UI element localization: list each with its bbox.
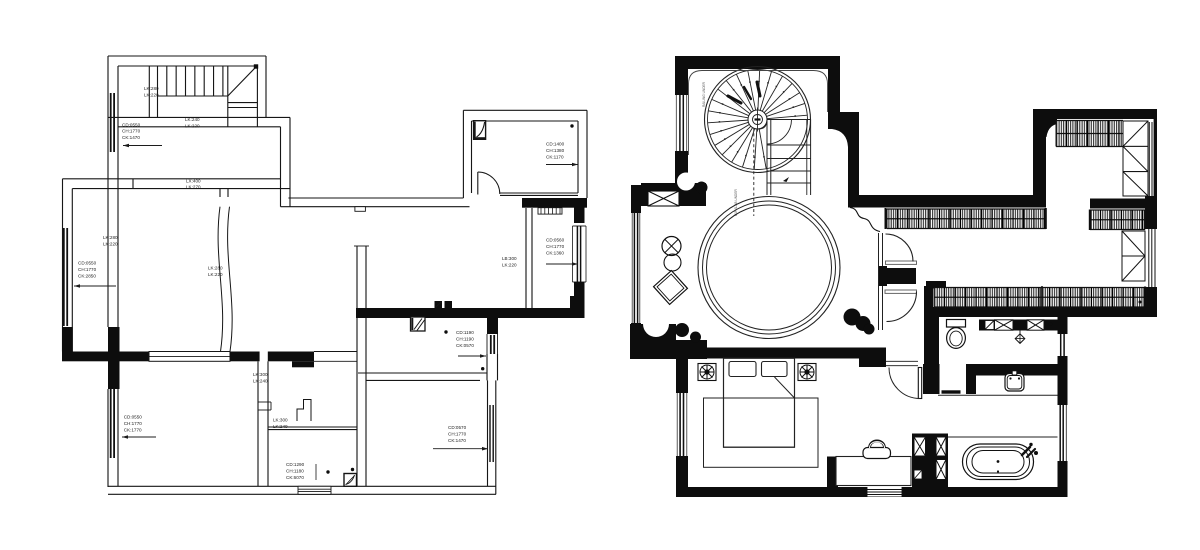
svg-text:LK:220: LK:220 [103, 241, 118, 246]
svg-text:CH:1180: CH:1180 [286, 468, 304, 473]
svg-text:LK:280: LK:280 [103, 235, 118, 240]
svg-text:CK:1170: CK:1170 [546, 154, 564, 159]
svg-text:LK:220: LK:220 [502, 262, 517, 267]
svg-text:LB:300: LB:300 [502, 256, 517, 261]
svg-text:LK:220: LK:220 [144, 92, 159, 97]
svg-text:LK:300: LK:300 [253, 372, 268, 377]
svg-text:CK:6070: CK:6070 [286, 475, 304, 480]
svg-text:LK:220: LK:220 [208, 272, 223, 277]
svg-text:LK:270: LK:270 [186, 185, 201, 190]
svg-text:LK:240: LK:240 [273, 424, 288, 429]
svg-text:LK:280: LK:280 [144, 86, 159, 91]
svg-text:CH:1770: CH:1770 [122, 129, 141, 134]
svg-text:LK:300: LK:300 [273, 418, 288, 423]
svg-text:CK:1360: CK:1360 [546, 250, 564, 255]
svg-text:RAILING UNDER: RAILING UNDER [702, 81, 706, 107]
svg-text:CD:1290: CD:1290 [286, 462, 305, 467]
svg-text:CD:1190: CD:1190 [456, 330, 474, 335]
svg-text:LK:220: LK:220 [185, 123, 200, 128]
svg-text:CH:1770: CH:1770 [546, 244, 565, 249]
svg-text:CD:0550: CD:0550 [124, 415, 143, 420]
svg-text:CK:0570: CK:0570 [456, 343, 474, 348]
svg-text:B1F.SLAB UNDER: B1F.SLAB UNDER [734, 189, 738, 216]
svg-text:CH:1770: CH:1770 [124, 421, 143, 426]
svg-text:CH:1770: CH:1770 [448, 431, 467, 436]
svg-text:CK:1470: CK:1470 [122, 135, 140, 140]
svg-text:CD:0550: CD:0550 [78, 261, 97, 266]
svg-text:LX:400: LX:400 [186, 178, 201, 183]
svg-text:CD:0570: CD:0570 [448, 425, 467, 430]
svg-text:CD:0550: CD:0550 [122, 122, 141, 127]
svg-text:CK:1770: CK:1770 [124, 427, 142, 432]
svg-text:LK:240: LK:240 [185, 117, 200, 122]
svg-text:LK:280: LK:280 [208, 266, 223, 271]
svg-text:CD:1400: CD:1400 [546, 142, 565, 147]
svg-text:CD:0560: CD:0560 [546, 238, 565, 243]
svg-text:CH:1190: CH:1190 [456, 336, 474, 341]
svg-text:CK:1470: CK:1470 [448, 438, 466, 443]
svg-text:CH:1770: CH:1770 [78, 267, 97, 272]
svg-text:LK:240: LK:240 [253, 378, 268, 383]
svg-text:CH:1380: CH:1380 [546, 148, 565, 153]
svg-text:CK:2850: CK:2850 [78, 273, 96, 278]
